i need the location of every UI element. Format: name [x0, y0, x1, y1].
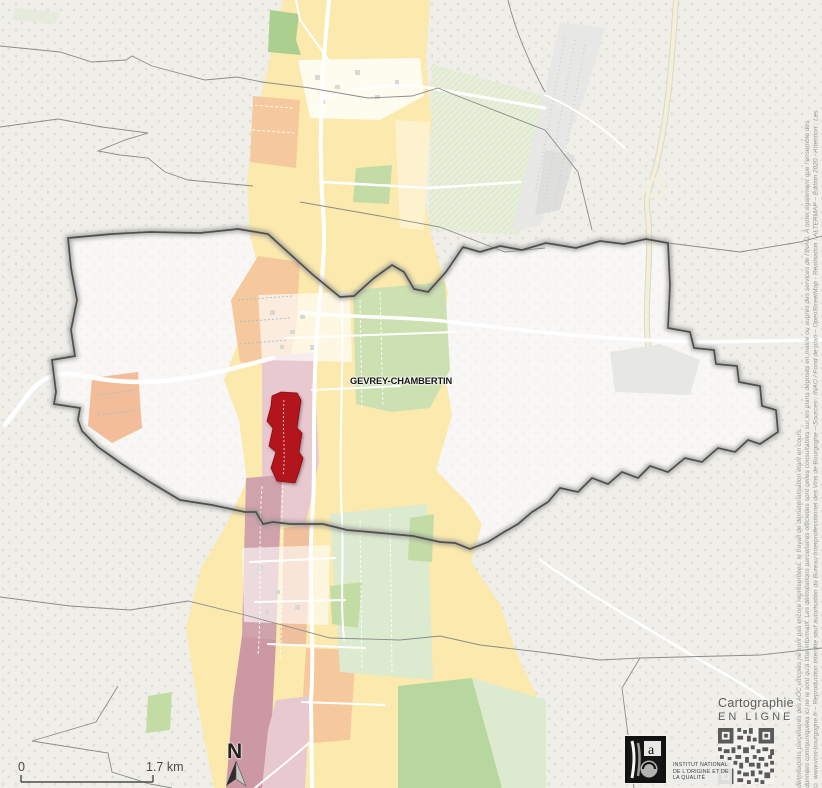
north-arrow: N: [221, 740, 255, 788]
inao-name: INSTITUT NATIONAL DE L'ORIGINE ET DE LA …: [670, 760, 732, 784]
copyright-line: données communiquées ici ne le sont qu'à…: [805, 0, 813, 788]
basemap-svg: [0, 0, 822, 788]
cartographie-subtitle: EN LIGNE: [718, 711, 796, 723]
copyright-notice: © www.vins-bourgogne.fr – Reproduction i…: [796, 0, 821, 788]
copyright-line: © www.vins-bourgogne.fr – Reproduction i…: [813, 0, 821, 788]
grand-cru-parcel: [267, 392, 303, 483]
map-canvas: GEVREY-CHAMBERTIN 0 1.7 km N Cartographi…: [0, 0, 822, 788]
inao-name-line: INSTITUT NATIONAL: [673, 762, 729, 769]
cartographie-title: Cartographie: [718, 696, 796, 710]
scale-end-label: 1.7 km: [146, 760, 184, 774]
inao-name-line: LA QUALITÉ: [673, 775, 729, 782]
inao-block: a INSTITUT NATIONAL DE L'ORIGINE ET DE L…: [624, 735, 732, 784]
scale-start-label: 0: [18, 760, 25, 774]
copyright-line: délimitations parcellaires des AOC vitic…: [796, 0, 804, 788]
commune-name-label: GEVREY-CHAMBERTIN: [350, 376, 452, 386]
scale-bar-line: [14, 774, 164, 784]
north-arrow-icon: [221, 760, 251, 788]
inao-logo: a: [624, 735, 667, 784]
svg-text:a: a: [648, 743, 655, 758]
scale-bar: 0 1.7 km: [14, 760, 194, 786]
